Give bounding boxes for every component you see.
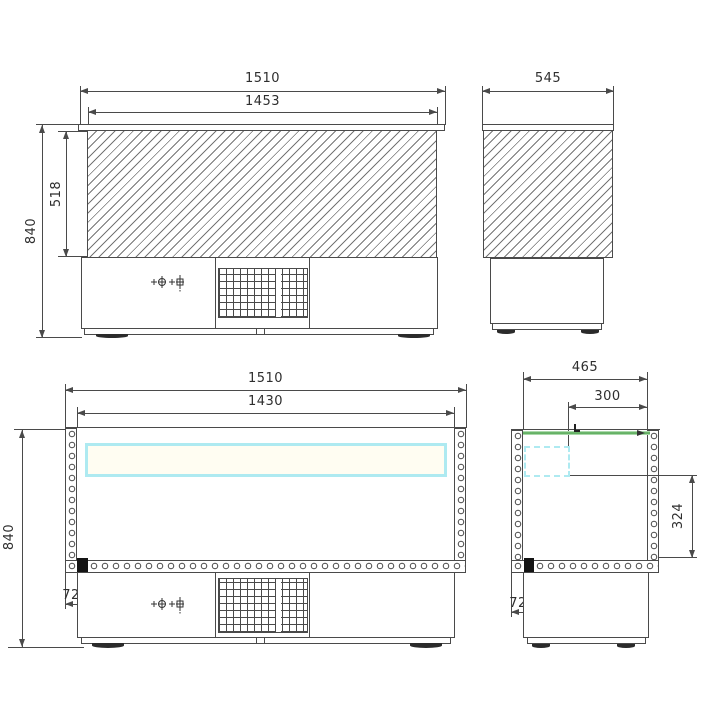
dim-label-overall-width: 1510 — [65, 372, 466, 386]
dim-label-lid-depth: 300 — [568, 390, 647, 404]
tub-rim-line — [65, 427, 467, 428]
panel-divider — [309, 573, 310, 638]
foot — [96, 334, 128, 338]
crosshair-icon — [151, 601, 157, 607]
switch-icon — [176, 597, 184, 614]
strip-notch — [256, 329, 257, 335]
lid-arrow — [637, 430, 645, 436]
dim-label-glass-height: 518 — [50, 177, 64, 211]
insulated-wall-left — [65, 428, 77, 561]
light-unit-dashed — [524, 446, 570, 477]
base-strip — [81, 637, 451, 644]
switch-icon — [176, 275, 184, 292]
dimension-line — [66, 131, 67, 257]
dim-label-inner-depth: 465 — [523, 361, 647, 375]
base-strip — [527, 637, 646, 644]
foot — [497, 330, 515, 334]
extension-line — [647, 372, 648, 429]
foot — [410, 643, 442, 648]
insulated-wall-right — [454, 428, 466, 561]
crosshair-icon — [169, 601, 175, 607]
dim-label-glass-width: 1453 — [88, 95, 437, 109]
extension-line — [659, 557, 697, 558]
base-strip — [84, 328, 434, 335]
dimension-line — [692, 475, 693, 558]
dimension-line — [77, 413, 454, 414]
control-panel-icons — [150, 272, 186, 292]
insulated-wall-right — [647, 430, 659, 561]
dimension-line — [88, 112, 437, 113]
side-panel — [483, 130, 613, 258]
extension-line — [454, 407, 455, 428]
crosshair-icon — [169, 279, 175, 285]
dimension-line — [42, 125, 43, 338]
strip-notch — [264, 329, 265, 335]
base-cabinet — [523, 572, 649, 638]
dimension-line — [523, 379, 647, 380]
extension-line — [8, 647, 84, 648]
dim-label-overall-height: 840 — [25, 214, 39, 248]
ventilation-grille — [218, 268, 308, 318]
glass-shelf-band — [85, 443, 447, 477]
thermostat-knob-icon — [158, 598, 166, 610]
panel-divider — [215, 573, 216, 638]
base-cabinet — [490, 258, 604, 324]
base-strip — [492, 323, 602, 330]
dim-label-overall-width: 1510 — [80, 72, 445, 86]
dimension-line — [65, 390, 466, 391]
strip-notch — [256, 638, 257, 644]
ventilation-grille — [218, 578, 308, 633]
foot — [617, 644, 635, 648]
panel-divider — [215, 258, 216, 329]
foot — [581, 330, 599, 334]
strip-notch — [264, 638, 265, 644]
dim-label-inner-height: 324 — [672, 499, 686, 533]
front-glass-panel — [87, 130, 437, 258]
foot — [398, 334, 430, 338]
dimension-line — [568, 407, 647, 408]
lid-clip-mark — [574, 424, 580, 432]
crosshair-icon — [151, 279, 157, 285]
dim-label-inner-width: 1430 — [77, 395, 454, 409]
glass-lid-line — [523, 431, 650, 435]
dimension-line — [22, 430, 23, 647]
insulated-wall-left — [511, 430, 523, 561]
extension-line — [445, 86, 446, 125]
foot — [92, 643, 124, 648]
leader-line — [570, 475, 697, 476]
dim-label-overall-height: 840 — [3, 520, 17, 554]
extension-line — [466, 384, 467, 428]
foot — [532, 644, 550, 648]
dimension-line — [482, 91, 614, 92]
control-panel-icons — [150, 594, 186, 614]
thermostat-knob-icon — [158, 276, 166, 288]
technical-drawing-sheet: 1510 1453 840 518 545 1510 1430 8 — [0, 0, 720, 720]
panel-divider — [309, 258, 310, 329]
extension-line — [437, 107, 438, 125]
dimension-line — [80, 91, 445, 92]
dim-label-overall-depth: 545 — [482, 72, 614, 86]
